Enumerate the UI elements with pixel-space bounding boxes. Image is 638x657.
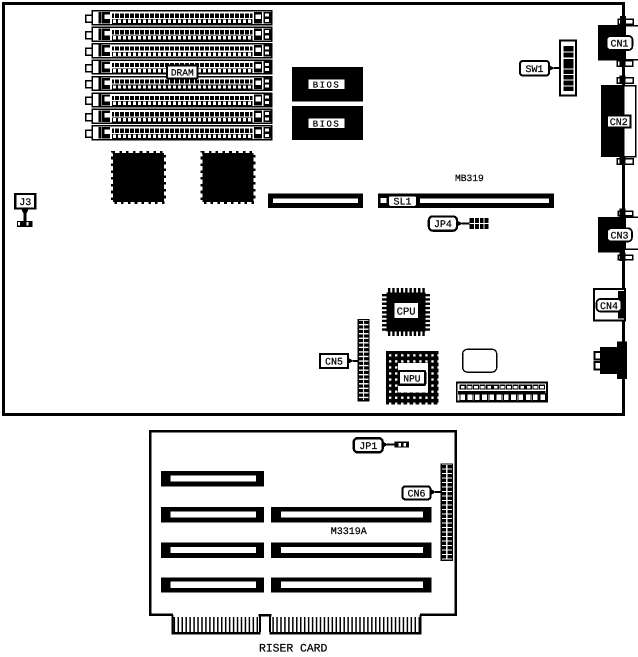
svg-text:BIOS: BIOS — [313, 119, 341, 129]
svg-text:M3319A: M3319A — [331, 527, 367, 538]
svg-text:NPU: NPU — [403, 373, 420, 384]
svg-text:JP4: JP4 — [434, 220, 452, 231]
svg-text:CN4: CN4 — [600, 302, 618, 313]
svg-text:CN1: CN1 — [610, 40, 628, 51]
svg-text:BIOS: BIOS — [313, 80, 341, 90]
svg-text:SW1: SW1 — [525, 65, 543, 76]
svg-text:CN3: CN3 — [610, 231, 628, 242]
svg-text:RISER CARD: RISER CARD — [259, 644, 328, 656]
svg-text:CN5: CN5 — [325, 357, 343, 368]
svg-text:CPU: CPU — [397, 306, 416, 318]
svg-text:DRAM: DRAM — [171, 67, 194, 78]
svg-text:MB319: MB319 — [455, 173, 484, 184]
svg-text:CN2: CN2 — [610, 118, 628, 129]
svg-text:SL1: SL1 — [393, 198, 411, 209]
svg-text:CN6: CN6 — [407, 489, 425, 500]
svg-text:J3: J3 — [19, 198, 31, 209]
svg-text:JP1: JP1 — [359, 442, 377, 453]
